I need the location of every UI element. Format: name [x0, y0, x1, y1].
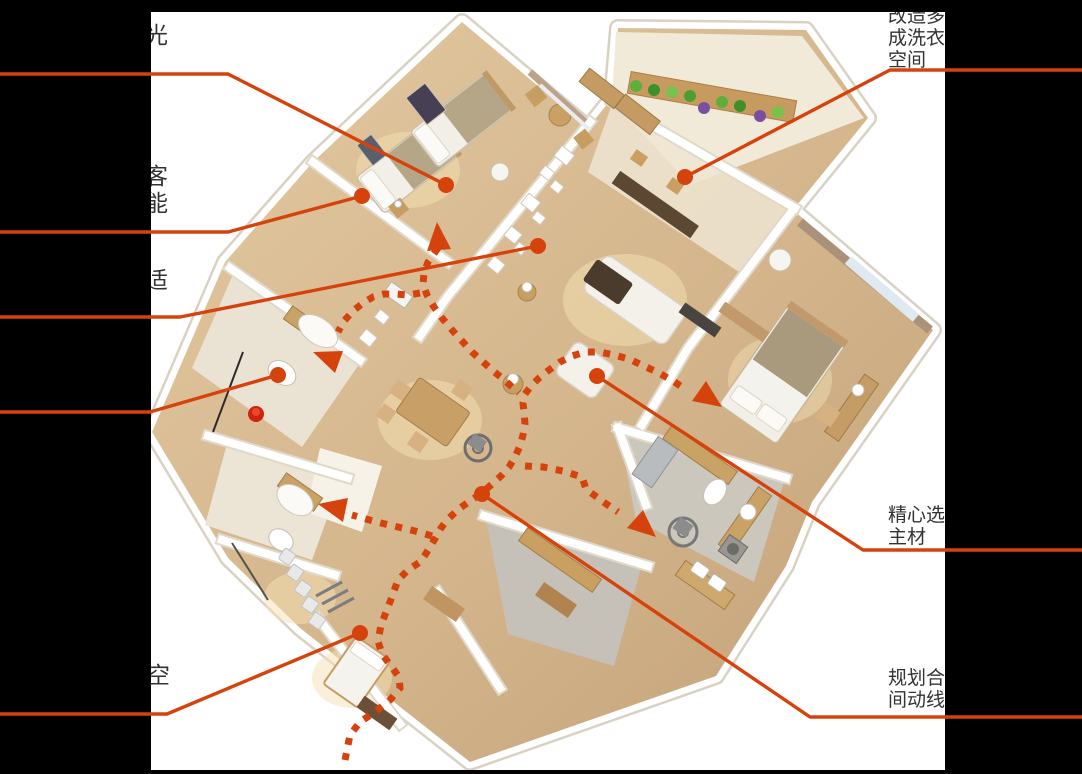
table-lamp — [395, 201, 402, 208]
mask-bar-bottom — [0, 770, 1082, 774]
label-laundry-line2: 成洗衣 — [888, 27, 945, 49]
renovation-floorplan-slide: 光 客 能 适 空 改造多 成洗衣 空间 精心选 主材 规划合 间动线 — [0, 0, 1082, 774]
target-dot-laundry — [677, 169, 693, 185]
target-dot-toilet — [270, 367, 286, 383]
washbasin — [740, 504, 756, 520]
label-laundry-line3: 空间 — [888, 49, 926, 71]
mask-bar-top — [0, 0, 1082, 12]
red-stool-top — [252, 408, 260, 416]
target-dot-comfort — [530, 238, 546, 254]
target-dot-guest — [354, 188, 370, 204]
desk-lamp — [852, 384, 864, 396]
floor-lamp — [769, 249, 791, 271]
table-lamp — [522, 282, 532, 292]
target-dot-materials — [589, 368, 605, 384]
floor-lamp — [491, 163, 509, 181]
mask-bar-right — [945, 0, 1082, 774]
floorplan-canvas: 光 客 能 适 空 改造多 成洗衣 空间 精心选 主材 规划合 间动线 — [0, 0, 1082, 774]
label-circulation: 规划合 间动线 — [888, 667, 945, 711]
label-materials-line1: 精心选 — [888, 504, 945, 526]
target-dot-space — [352, 625, 368, 641]
target-dot-light — [438, 177, 454, 193]
label-circulation-line2: 间动线 — [888, 689, 945, 711]
label-materials-line2: 主材 — [888, 526, 926, 548]
label-circulation-line1: 规划合 — [888, 667, 945, 689]
mask-bar-left — [0, 0, 151, 774]
